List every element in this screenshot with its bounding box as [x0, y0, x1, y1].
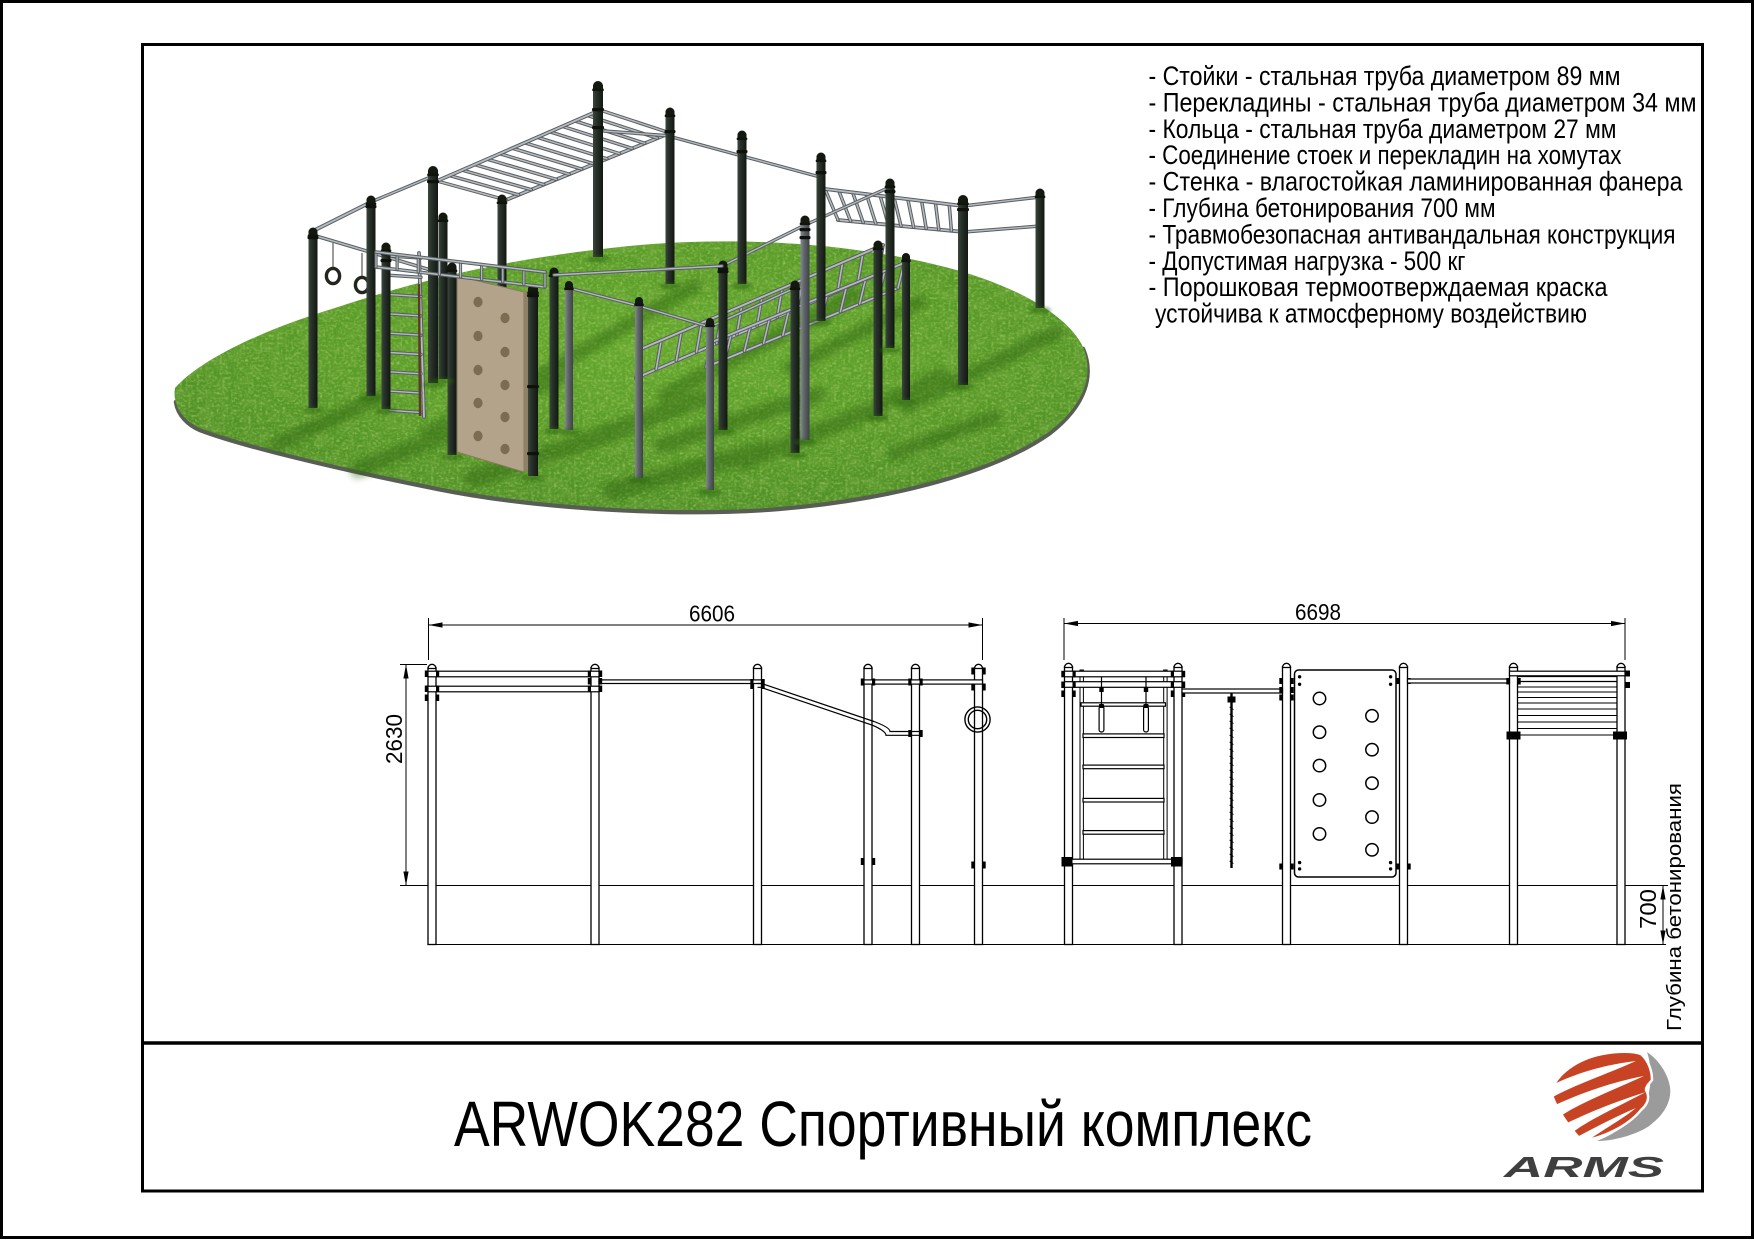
svg-text:6698: 6698 [1295, 599, 1341, 625]
svg-text:ARMS: ARMS [1502, 1152, 1665, 1184]
svg-text:Глубина бетонирования: Глубина бетонирования [1663, 783, 1686, 1031]
svg-text:700: 700 [1635, 889, 1661, 929]
svg-text:устойчива к атмосферному возде: устойчива к атмосферному воздействию [1155, 299, 1587, 329]
svg-text:2630: 2630 [381, 714, 407, 764]
svg-text:ARWOK282 Спортивный комплекс: ARWOK282 Спортивный комплекс [454, 1088, 1312, 1160]
svg-text:6606: 6606 [689, 601, 735, 627]
